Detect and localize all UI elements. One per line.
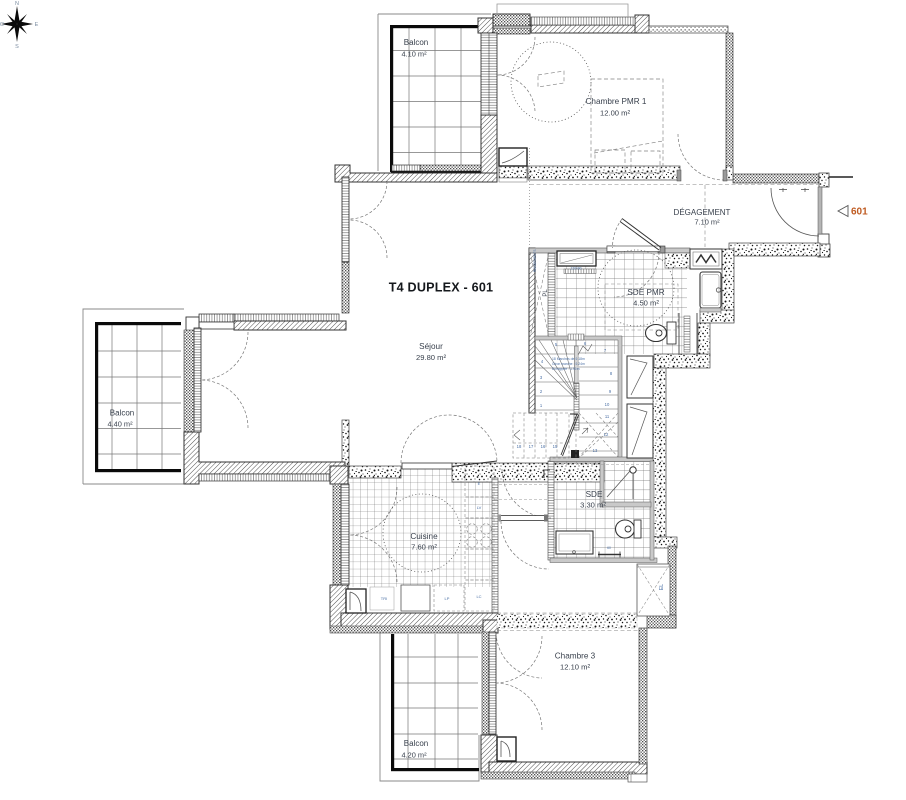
svg-text:Balcon: Balcon [404, 38, 428, 47]
svg-text:17: 17 [529, 444, 534, 449]
svg-text:15: 15 [553, 444, 558, 449]
svg-text:SDE: SDE [586, 490, 603, 499]
svg-text:Giron marche : 0.24m: Giron marche : 0.24m [552, 362, 585, 366]
svg-text:Chambre PMR 1: Chambre PMR 1 [586, 97, 647, 106]
svg-text:601: 601 [851, 207, 868, 218]
svg-text:TRI: TRI [381, 596, 387, 601]
svg-text:DÉGAGEMENT: DÉGAGEMENT [674, 208, 731, 217]
svg-text:12: 12 [604, 432, 609, 437]
svg-text:4.50 m²: 4.50 m² [633, 299, 659, 308]
svg-text:T4 DUPLEX - 601: T4 DUPLEX - 601 [389, 281, 493, 295]
svg-text:29.80 m²: 29.80 m² [416, 353, 446, 362]
svg-text:Balcon: Balcon [110, 409, 134, 418]
svg-text:Balcon: Balcon [404, 739, 428, 748]
svg-text:N: N [15, 1, 19, 7]
svg-text:12.10 m²: 12.10 m² [560, 663, 590, 672]
svg-text:18: 18 [517, 444, 522, 449]
svg-text:RANGEMENTS: RANGEMENTS [533, 250, 537, 273]
svg-text:7.10 m²: 7.10 m² [694, 218, 720, 227]
svg-text:60: 60 [607, 546, 611, 550]
svg-text:4.40 m²: 4.40 m² [107, 420, 133, 429]
svg-text:10: 10 [605, 402, 610, 407]
svg-text:LV: LV [477, 505, 482, 510]
svg-text:13: 13 [593, 448, 598, 453]
svg-text:SDE PMR: SDE PMR [627, 288, 664, 297]
svg-text:E: E [35, 22, 39, 28]
svg-text:Cuisine: Cuisine [410, 532, 438, 541]
svg-text:Echappée : 1.90m: Echappée : 1.90m [552, 367, 580, 371]
svg-text:120x90: 120x90 [570, 267, 581, 271]
svg-text:18 Marches de 0.18m: 18 Marches de 0.18m [552, 357, 585, 361]
svg-text:7.60 m²: 7.60 m² [411, 543, 437, 552]
svg-text:16: 16 [541, 444, 546, 449]
svg-text:3.30 m²: 3.30 m² [580, 501, 606, 510]
svg-text:Séjour: Séjour [419, 342, 443, 351]
svg-text:S: S [15, 44, 19, 50]
svg-text:12.00 m²: 12.00 m² [600, 109, 630, 118]
svg-text:LP: LP [445, 596, 450, 601]
svg-text:EL: EL [659, 584, 665, 590]
svg-text:LC: LC [476, 594, 481, 599]
svg-text:4.20 m²: 4.20 m² [401, 751, 427, 760]
svg-text:E: E [478, 481, 481, 486]
svg-text:Chambre 3: Chambre 3 [555, 652, 596, 661]
svg-text:O: O [0, 22, 5, 28]
svg-text:PL: PL [543, 289, 549, 297]
svg-text:4.10 m²: 4.10 m² [401, 50, 427, 59]
svg-text:11: 11 [605, 414, 610, 419]
